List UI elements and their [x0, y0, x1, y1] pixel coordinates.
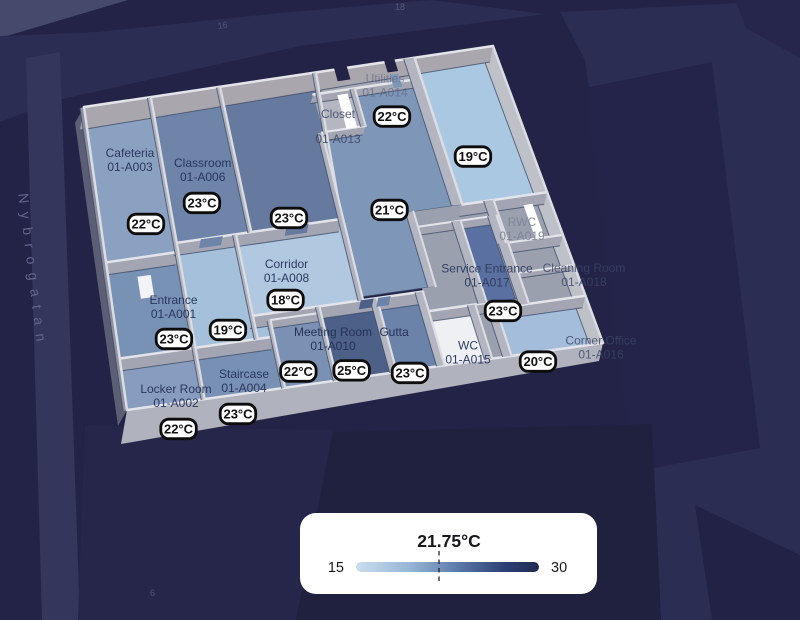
- svg-text:23°C: 23°C: [159, 332, 189, 347]
- svg-text:6: 6: [150, 588, 155, 598]
- svg-text:Cafeteria: Cafeteria: [106, 146, 155, 160]
- svg-text:Service Entrance: Service Entrance: [441, 262, 533, 276]
- svg-text:01-A002: 01-A002: [153, 396, 199, 410]
- svg-text:19°C: 19°C: [213, 323, 243, 338]
- svg-text:21.75°C: 21.75°C: [417, 531, 481, 551]
- svg-text:01-A004: 01-A004: [221, 381, 267, 395]
- svg-text:Gutta: Gutta: [379, 325, 409, 339]
- svg-text:22°C: 22°C: [164, 422, 194, 437]
- svg-text:23°C: 23°C: [395, 366, 425, 381]
- svg-text:22°C: 22°C: [284, 364, 314, 379]
- svg-text:15: 15: [328, 560, 344, 576]
- svg-text:01-A008: 01-A008: [264, 271, 310, 285]
- svg-text:20°C: 20°C: [523, 354, 553, 369]
- svg-text:01-A001: 01-A001: [151, 307, 197, 321]
- svg-text:RWC: RWC: [508, 215, 537, 229]
- svg-text:01-A013: 01-A013: [315, 132, 361, 146]
- svg-text:01-A014: 01-A014: [362, 86, 408, 100]
- svg-text:18°C: 18°C: [271, 293, 301, 308]
- svg-text:Utilities: Utilities: [366, 72, 405, 86]
- svg-text:23°C: 23°C: [187, 196, 217, 211]
- svg-text:01-A017: 01-A017: [464, 276, 510, 290]
- svg-text:16: 16: [217, 20, 228, 31]
- svg-text:23°C: 23°C: [223, 407, 253, 422]
- svg-text:18: 18: [395, 2, 405, 12]
- svg-text:01-A006: 01-A006: [180, 170, 226, 184]
- svg-text:Classroom: Classroom: [174, 156, 231, 170]
- svg-text:Meeting Room: Meeting Room: [294, 325, 372, 339]
- svg-text:01-A015: 01-A015: [445, 353, 491, 367]
- svg-text:22°C: 22°C: [377, 109, 407, 124]
- svg-text:22°C: 22°C: [131, 217, 161, 232]
- svg-text:30: 30: [551, 560, 567, 576]
- svg-text:Corridor: Corridor: [265, 257, 308, 271]
- svg-text:Entrance: Entrance: [149, 293, 197, 307]
- svg-text:Locker Room: Locker Room: [140, 382, 211, 396]
- svg-text:25°C: 25°C: [337, 363, 367, 378]
- svg-text:Cleaning Room: Cleaning Room: [543, 261, 626, 275]
- svg-text:Closet: Closet: [321, 107, 356, 121]
- svg-text:01-A010: 01-A010: [310, 339, 356, 353]
- svg-text:01-A018: 01-A018: [561, 275, 607, 289]
- svg-text:Corner Office: Corner Office: [565, 334, 636, 348]
- svg-text:WC: WC: [458, 339, 478, 353]
- svg-text:19°C: 19°C: [458, 149, 488, 164]
- svg-text:23°C: 23°C: [488, 304, 518, 319]
- svg-text:01-A016: 01-A016: [578, 348, 624, 362]
- svg-text:Staircase: Staircase: [219, 367, 269, 381]
- svg-text:23°C: 23°C: [274, 211, 304, 226]
- svg-text:21°C: 21°C: [375, 203, 405, 218]
- svg-text:01-A019: 01-A019: [499, 229, 545, 243]
- svg-text:01-A003: 01-A003: [107, 160, 153, 174]
